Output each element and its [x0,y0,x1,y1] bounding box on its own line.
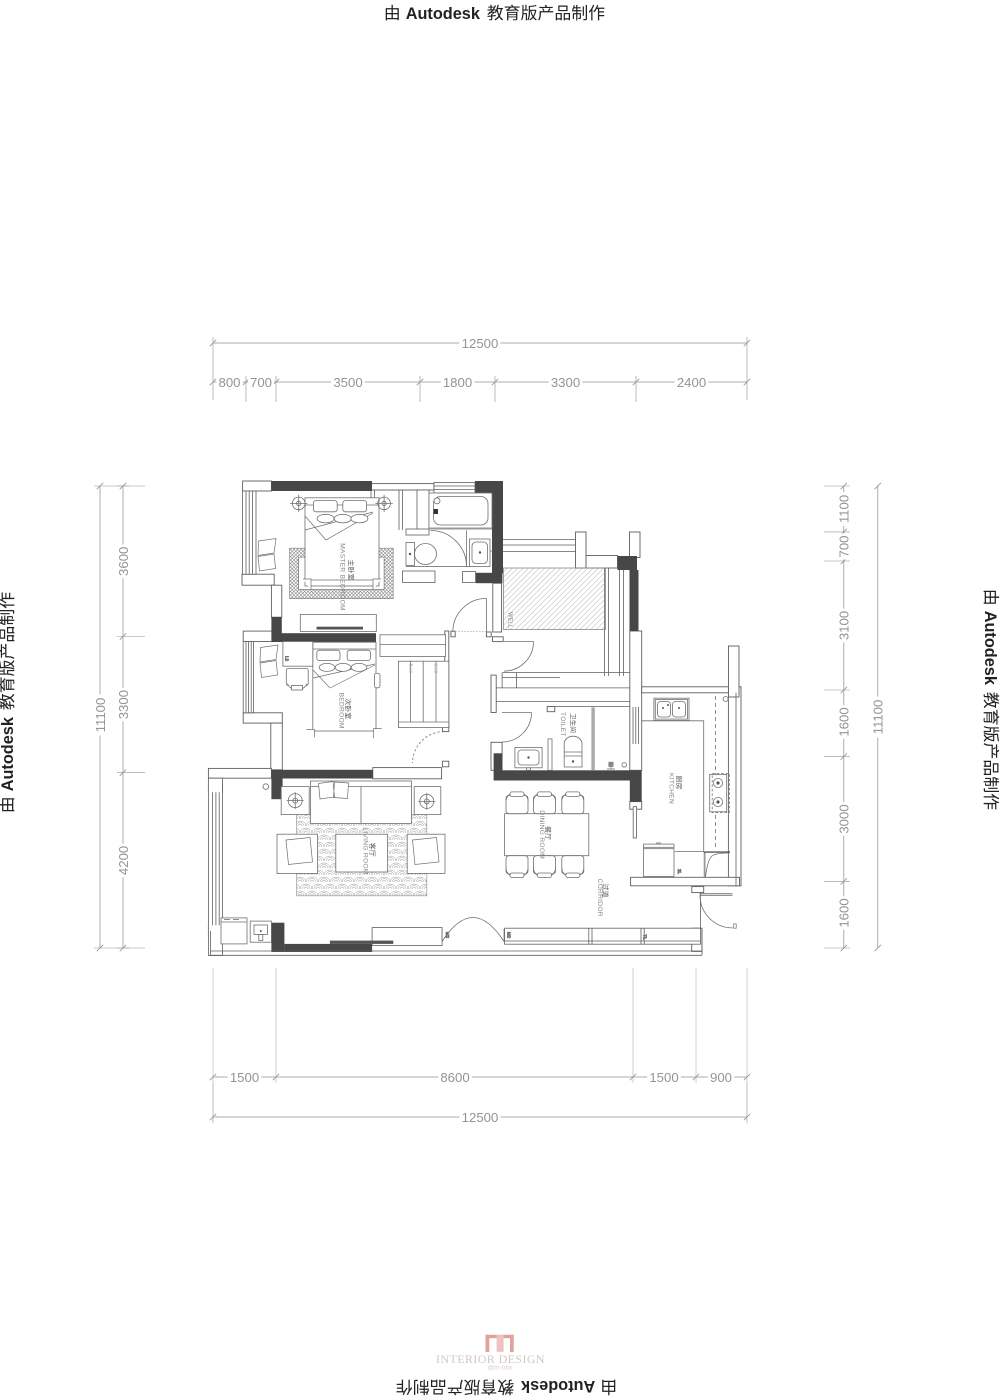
svg-text:1800: 1800 [443,375,472,390]
svg-text:900: 900 [710,1070,732,1085]
svg-text:L2: L2 [285,656,290,662]
svg-text:M2: M2 [507,932,512,939]
svg-text:8600: 8600 [440,1070,469,1085]
svg-text:1100: 1100 [837,495,852,523]
svg-text:3600: 3600 [116,547,131,576]
svg-text:Autodesk: Autodesk [406,5,481,23]
svg-text:B.I.C: B.I.C [434,663,439,674]
svg-text:800: 800 [218,375,240,390]
svg-text:1600: 1600 [837,898,852,927]
svg-text:1600: 1600 [837,707,852,736]
svg-text:Autodesk: Autodesk [981,611,999,686]
svg-text:4200: 4200 [116,846,131,875]
svg-text:3100: 3100 [837,611,852,640]
svg-text:LIVING ROOM: LIVING ROOM [362,827,369,874]
svg-text:KITCHEN: KITCHEN [668,773,675,804]
svg-text:3300: 3300 [551,375,580,390]
svg-text:3300: 3300 [116,690,131,719]
svg-text:700: 700 [250,375,272,390]
svg-text:Autodesk: Autodesk [0,716,17,791]
svg-text:TOILET: TOILET [559,712,566,737]
svg-text:2L: 2L [677,869,682,875]
svg-text:WELL: WELL [507,612,513,629]
svg-text:BEDROOM: BEDROOM [338,693,345,729]
svg-text:12500: 12500 [462,336,499,351]
svg-text:1500: 1500 [649,1070,678,1085]
svg-text:1500: 1500 [230,1070,259,1085]
svg-text:MASTER BEDROOM: MASTER BEDROOM [339,543,346,611]
svg-text:3500: 3500 [333,375,362,390]
svg-text:TL: TL [643,934,648,940]
svg-text:CORRIDOR: CORRIDOR [596,879,603,917]
svg-text:2400: 2400 [677,375,706,390]
svg-text:@m-bbs: @m-bbs [488,1365,513,1372]
svg-text:M2: M2 [445,932,450,939]
svg-text:3000: 3000 [837,804,852,833]
svg-text:DINING ROOM: DINING ROOM [538,810,545,859]
svg-text:12500: 12500 [462,1110,499,1125]
svg-text:Autodesk: Autodesk [520,1377,595,1395]
svg-text:11100: 11100 [93,698,108,733]
svg-text:B.I.C: B.I.C [409,663,414,674]
svg-text:11100: 11100 [871,700,886,735]
svg-text:700: 700 [837,535,852,557]
